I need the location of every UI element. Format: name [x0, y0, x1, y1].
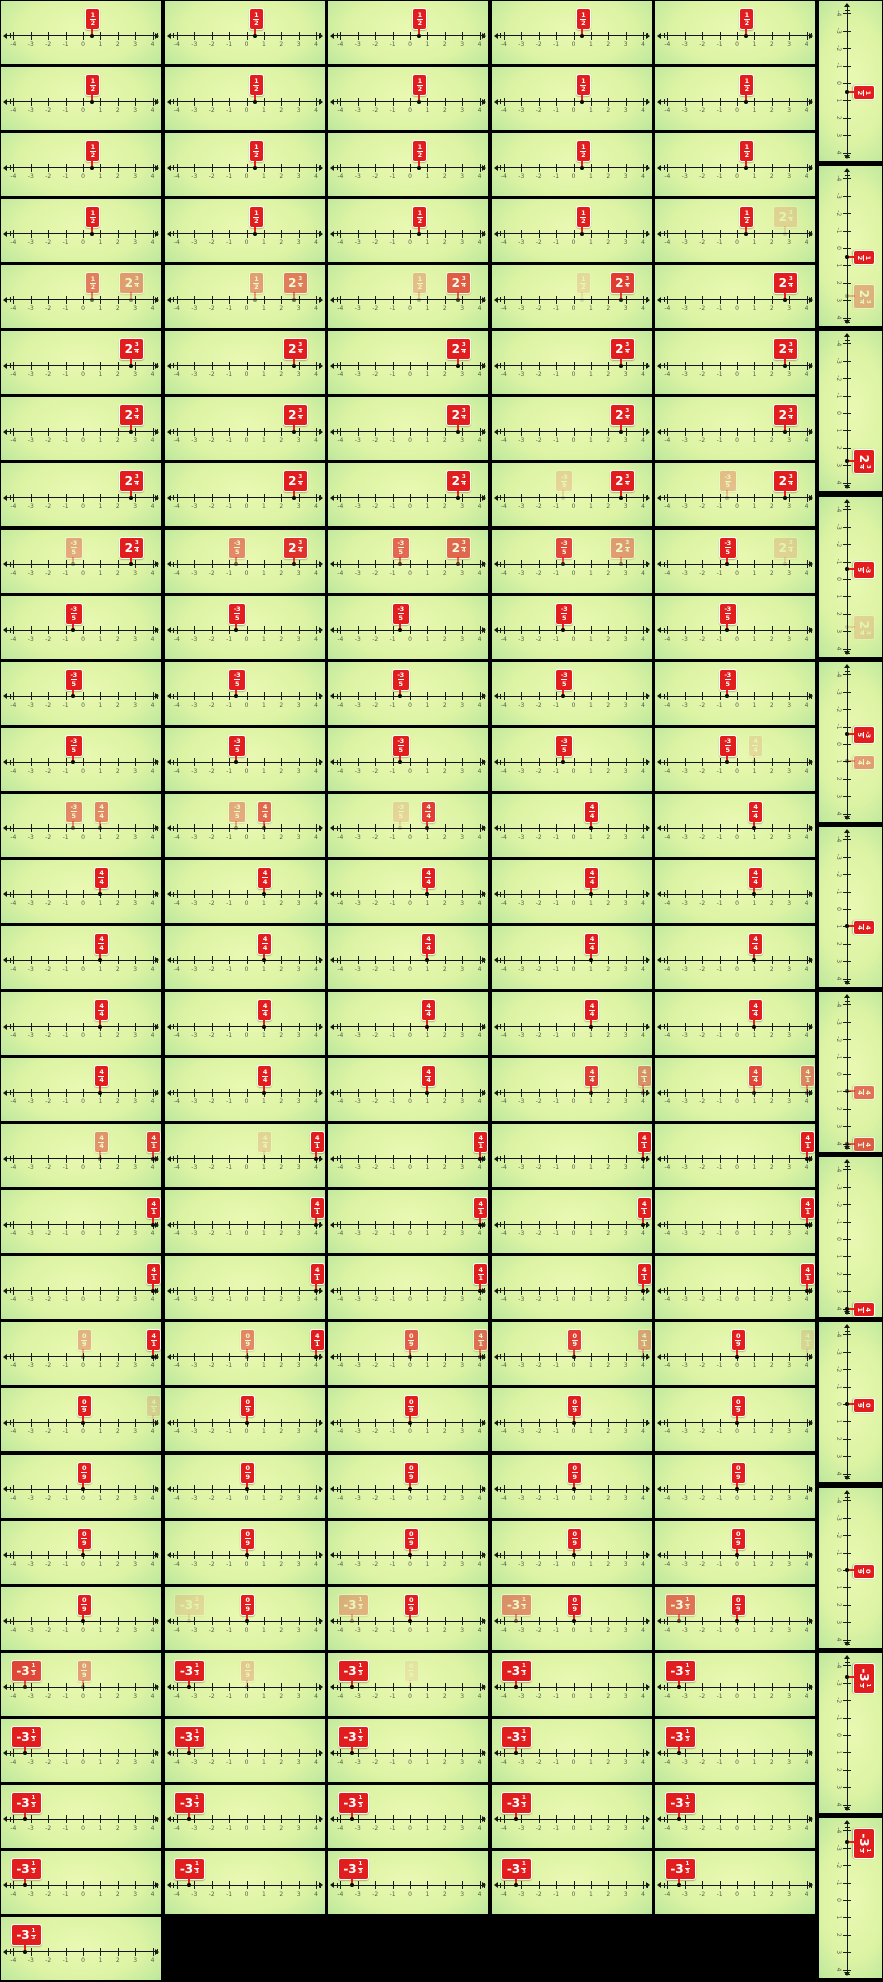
tick-mark [789, 230, 790, 238]
tick-mark [212, 1683, 213, 1691]
fraction-flag: 12 [739, 206, 754, 228]
tick-mark [229, 1419, 230, 1427]
minor-tick-mark [337, 562, 338, 567]
tick-label: -3 [515, 702, 527, 709]
tick-label: 0 [241, 1296, 253, 1303]
fraction-numerator: 4 [753, 936, 757, 943]
minor-tick-mark [337, 33, 338, 38]
tick-label: -4 [498, 636, 510, 643]
tick-mark [789, 164, 790, 172]
tick-mark [789, 1155, 790, 1163]
tick-mark [118, 494, 119, 502]
tick-label: -4 [334, 305, 346, 312]
fraction-stack: -35 [70, 804, 76, 819]
flag-pointer [849, 625, 855, 627]
tick-label: -4 [498, 1098, 510, 1105]
tick-mark [480, 1617, 481, 1625]
tick-label: -3 [352, 107, 364, 114]
tick-label: 3 [129, 1164, 141, 1171]
tick-mark [135, 1287, 136, 1295]
tick-label: -2 [206, 1098, 218, 1105]
minor-tick-mark [337, 826, 338, 831]
tick-mark [48, 494, 49, 502]
tick-mark [410, 164, 411, 172]
tick-mark [66, 362, 67, 370]
tick-mark [13, 626, 14, 634]
tick-mark [772, 1155, 773, 1163]
fraction-denominator: 5 [562, 549, 566, 556]
tick-label: -1 [550, 437, 562, 444]
tick-label: -3 [352, 503, 364, 510]
tick-label: -1 [387, 173, 399, 180]
tick-mark [340, 1221, 341, 1229]
fraction-stack: 44 [589, 804, 595, 819]
number-line-frame: -4-3-2-101234234 [165, 331, 325, 394]
tick-mark [316, 362, 317, 370]
arrow-left-icon [657, 231, 661, 237]
tick-mark [281, 890, 282, 898]
tick-mark [299, 1023, 300, 1031]
tick-mark [13, 1617, 14, 1625]
tick-mark [31, 626, 32, 634]
fraction-denominator: 4 [590, 945, 594, 952]
tick-mark [807, 362, 808, 370]
marker-dot [245, 1355, 249, 1359]
tick-label: 2 [275, 1362, 287, 1369]
fraction-denominator: 4 [263, 1011, 267, 1018]
tick-mark [118, 758, 119, 766]
minor-tick-mark [664, 1156, 665, 1161]
tick-label: -4 [7, 1957, 19, 1964]
tick-label: -1 [223, 702, 235, 709]
tick-label: -2 [369, 437, 381, 444]
fraction-denominator: 4 [298, 350, 301, 356]
tick-mark [66, 1089, 67, 1097]
fraction-numerator: 0 [736, 1465, 740, 1472]
tick-mark [521, 230, 522, 238]
tick-mark [737, 1023, 738, 1031]
arrow-left-icon [494, 825, 498, 831]
fraction-numerator: 4 [426, 804, 430, 811]
marker-dot [725, 694, 729, 698]
tick-mark [153, 428, 154, 436]
tick-mark [591, 1353, 592, 1361]
tick-mark [685, 758, 686, 766]
tick-mark [229, 164, 230, 172]
tick-mark [427, 1881, 428, 1889]
tick-mark [789, 362, 790, 370]
fraction-numerator: 0 [245, 1531, 249, 1538]
marker-dot [71, 826, 75, 830]
tick-label: -3 [679, 1296, 691, 1303]
number-line-frame: -4-3-2-101234-313 [1, 1851, 161, 1914]
tick-label: 1 [421, 570, 433, 577]
tick-mark [316, 494, 317, 502]
tick-label: -3 [515, 1032, 527, 1039]
tick-label: -2 [533, 1693, 545, 1700]
tick-mark [281, 1089, 282, 1097]
tick-mark [194, 1221, 195, 1229]
tick-mark [667, 824, 668, 832]
number-line [170, 431, 320, 432]
tick-label: 3 [620, 900, 632, 907]
tick-label: -3 [188, 503, 200, 510]
fraction-stack: 41 [641, 1135, 647, 1150]
tick-label: -3 [25, 1825, 37, 1832]
tick-mark [229, 362, 230, 370]
fraction-denominator: 2 [581, 284, 585, 291]
tick-label: 4 [801, 107, 813, 114]
tick-label: -3 [679, 570, 691, 577]
tick-label: 0 [77, 834, 89, 841]
tick-label: -2 [696, 1428, 708, 1435]
number-line [170, 1753, 320, 1754]
tick-label: -4 [498, 834, 510, 841]
tick-label: 4 [801, 1230, 813, 1237]
tick-label: -2 [533, 371, 545, 378]
tick-mark [591, 230, 592, 238]
fraction-flag: 41 [637, 1197, 652, 1219]
fraction-numerator: 1 [195, 1796, 198, 1802]
tick-label: 0 [731, 702, 743, 709]
tick-label: 0 [731, 1495, 743, 1502]
tick-mark [48, 164, 49, 172]
number-line-frame: -4-3-2-101234234 [492, 331, 652, 394]
minor-tick-mark [500, 562, 501, 567]
tick-label: -1 [387, 371, 399, 378]
tick-mark [358, 1089, 359, 1097]
tick-label: -1 [550, 503, 562, 510]
fraction-flag: 09 [567, 1462, 582, 1484]
number-line [660, 1687, 810, 1688]
tick-mark [177, 428, 178, 436]
tick-label: 0 [77, 900, 89, 907]
tick-label: -3 [188, 437, 200, 444]
arrow-left-icon [330, 825, 334, 831]
tick-label: 0 [404, 1428, 416, 1435]
minor-tick-mark [664, 958, 665, 963]
tick-label: 0 [77, 1759, 89, 1766]
tick-mark [521, 956, 522, 964]
tick-label: -4 [661, 636, 673, 643]
tick-label: -3 [352, 1032, 364, 1039]
tick-label: 4 [474, 1825, 486, 1832]
fraction-numerator: 3 [135, 277, 138, 283]
tick-mark [626, 32, 627, 40]
tick-label: -2 [206, 1164, 218, 1171]
number-line [847, 6, 848, 156]
tick-mark [358, 1023, 359, 1031]
tick-mark [608, 362, 609, 370]
tick-label: 1 [258, 1495, 270, 1502]
tick-mark [375, 758, 376, 766]
fraction-numerator: 1 [32, 1929, 35, 1935]
arrow-left-icon [3, 1552, 7, 1558]
tick-label: -4 [835, 173, 842, 185]
arrow-left-icon [330, 1354, 334, 1360]
tick-mark [539, 296, 540, 304]
tick-mark [212, 1749, 213, 1757]
tick-mark [702, 1485, 703, 1493]
fraction-flag: -35 [65, 603, 83, 625]
tick-mark [772, 1815, 773, 1823]
marker-dot [350, 1751, 354, 1755]
tick-mark [702, 1287, 703, 1295]
tick-label: -3 [515, 107, 527, 114]
fraction-denominator: 5 [399, 615, 403, 622]
tick-label: -4 [498, 1627, 510, 1634]
tick-mark [504, 230, 505, 238]
tick-label: 4 [637, 1098, 649, 1105]
tick-label: 0 [404, 1230, 416, 1237]
flag-pointer [849, 295, 855, 297]
minor-tick-mark [10, 826, 11, 831]
number-line [497, 1026, 647, 1027]
fraction-numerator: -3 [397, 804, 403, 811]
minor-tick-mark [173, 1685, 174, 1690]
tick-label: 1 [748, 636, 760, 643]
fraction-numerator: 1 [686, 1796, 689, 1802]
tick-mark [737, 1683, 738, 1691]
fraction-stack: -35 [234, 672, 240, 687]
tick-mark [375, 428, 376, 436]
tick-mark [626, 824, 627, 832]
minor-tick-mark [664, 1883, 665, 1888]
tick-mark [375, 296, 376, 304]
tick-label: -4 [334, 239, 346, 246]
tick-mark [264, 98, 265, 106]
fraction-denominator: 3 [686, 1672, 689, 1678]
minor-tick-mark [500, 231, 501, 236]
tick-mark [247, 1023, 248, 1031]
number-line-frame: -4-3-2-10123409 [1, 1455, 161, 1518]
minor-tick-mark [811, 99, 812, 104]
arrow-left-icon [167, 1684, 171, 1690]
marker-dot [292, 430, 296, 434]
tick-mark [375, 560, 376, 568]
tick-mark [807, 164, 808, 172]
marker-dot [98, 958, 102, 962]
tick-mark [299, 1749, 300, 1757]
tick-mark [264, 1881, 265, 1889]
tick-label: -3 [835, 355, 842, 367]
fraction-flag: -313 [665, 1858, 696, 1880]
marker-dot [234, 694, 238, 698]
tick-label: 1 [585, 239, 597, 246]
tick-mark [135, 1155, 136, 1163]
tick-label: 2 [439, 503, 451, 510]
tick-label: -3 [25, 1098, 37, 1105]
tick-label: -2 [533, 1164, 545, 1171]
tick-label: -2 [42, 1957, 54, 1964]
tick-label: -1 [223, 1495, 235, 1502]
tick-label: -3 [679, 1561, 691, 1568]
tick-label: -1 [550, 1759, 562, 1766]
fraction-flag: 12 [576, 272, 591, 294]
fraction-numerator: 4 [99, 870, 103, 877]
number-line-frame: -4-3-2-101234-35 [1, 662, 161, 725]
arrow-left-icon [167, 231, 171, 237]
tick-label: -1 [387, 1825, 399, 1832]
tick-mark [13, 1815, 14, 1823]
minor-tick-mark [173, 165, 174, 170]
tick-label: 1 [748, 834, 760, 841]
number-line-frame: -4-3-2-101234-35 [328, 728, 488, 791]
tick-label: 2 [766, 503, 778, 510]
tick-mark [754, 230, 755, 238]
tick-label: -2 [369, 570, 381, 577]
fraction-stack: 44 [425, 936, 431, 951]
number-line-frame: -4-3-2-10123444 [655, 926, 815, 989]
minor-tick-mark [157, 958, 158, 963]
tick-label: 4 [637, 1825, 649, 1832]
number-line [660, 894, 810, 895]
tick-label: -1 [223, 305, 235, 312]
fraction-numerator: 1 [581, 144, 585, 151]
number-line [333, 828, 483, 829]
fraction-whole-number: 2 [125, 409, 133, 421]
fraction-stack: 41 [478, 1333, 484, 1348]
minor-tick-mark [157, 1817, 158, 1822]
minor-tick-mark [337, 1817, 338, 1822]
fraction-numerator: 0 [736, 1399, 740, 1406]
fraction-flag: 12 [249, 8, 264, 30]
tick-mark [480, 1551, 481, 1559]
tick-label: 2 [602, 570, 614, 577]
tick-label: 1 [94, 1098, 106, 1105]
tick-label: -3 [679, 702, 691, 709]
fraction-numerator: 1 [359, 1664, 362, 1670]
fraction-numerator: -3 [724, 474, 730, 481]
tick-mark [789, 890, 790, 898]
arrow-left-icon [330, 693, 334, 699]
fraction-flag: -313 [665, 1660, 696, 1682]
tick-label: -4 [7, 41, 19, 48]
fraction-stack: 12 [417, 12, 423, 27]
fraction-denominator: 1 [478, 1341, 482, 1348]
minor-tick-mark [647, 99, 648, 104]
minor-tick-mark [647, 892, 648, 897]
tick-label: -1 [60, 1164, 72, 1171]
tick-mark [591, 98, 592, 106]
fraction-numerator: 3 [865, 300, 871, 303]
tick-mark [772, 956, 773, 964]
tick-label: -4 [498, 1693, 510, 1700]
tick-label: -2 [533, 1759, 545, 1766]
tick-mark [393, 1617, 394, 1625]
tick-mark [462, 890, 463, 898]
number-line [497, 1687, 647, 1688]
minor-tick-mark [500, 892, 501, 897]
number-line-frame: -4-3-2-10123441 [1, 1190, 161, 1253]
tick-label: 3 [783, 570, 795, 577]
tick-label: 3 [129, 239, 141, 246]
tick-mark [393, 164, 394, 172]
number-line-frame: -4-3-2-10123444 [492, 926, 652, 989]
tick-mark [685, 560, 686, 568]
tick-mark [608, 824, 609, 832]
fraction-flag: 44 [421, 1065, 436, 1087]
number-line-frame: -4-3-2-10123441 [328, 1190, 488, 1253]
tick-label: 1 [585, 1759, 597, 1766]
fraction-whole-number: 2 [779, 343, 787, 355]
tick-mark [685, 692, 686, 700]
number-line-frame: -4-3-2-10123444 [492, 794, 652, 857]
number-line-frame: -4-3-2-10123412234 [492, 265, 652, 328]
tick-mark [737, 626, 738, 634]
tick-label: 2 [766, 900, 778, 907]
tick-mark [13, 1287, 14, 1295]
fraction-denominator: 1 [478, 1143, 482, 1150]
tick-mark [247, 956, 248, 964]
tick-label: 4 [801, 768, 813, 775]
tick-label: 1 [748, 503, 760, 510]
tick-label: 1 [258, 834, 270, 841]
tick-label: -2 [369, 1362, 381, 1369]
fraction-flag: 09 [240, 1528, 255, 1550]
tick-mark [445, 296, 446, 304]
fraction-whole-number: -3 [16, 1929, 29, 1941]
fraction-stack: -35 [397, 672, 403, 687]
sprite-sheet: -4-3-2-10123412-4-3-2-10123412-4-3-2-101… [0, 0, 883, 1982]
fraction-flag: 12 [576, 140, 591, 162]
tick-label: -3 [515, 305, 527, 312]
minor-tick-mark [500, 165, 501, 170]
tick-mark [462, 626, 463, 634]
tick-mark [574, 494, 575, 502]
tick-mark [521, 1023, 522, 1031]
tick-mark [358, 1815, 359, 1823]
tick-label: 4 [801, 900, 813, 907]
fraction-flag: 12 [412, 206, 427, 228]
tick-mark [462, 1155, 463, 1163]
marker-dot [314, 1223, 318, 1227]
tick-mark [281, 1551, 282, 1559]
tick-label: -4 [334, 1296, 346, 1303]
tick-label: -4 [7, 966, 19, 973]
fraction-flag: 12 [739, 140, 754, 162]
tick-mark [299, 1155, 300, 1163]
tick-label: -4 [661, 1825, 673, 1832]
number-line-frame: -4-3-2-10123412 [328, 199, 488, 262]
tick-mark [754, 98, 755, 106]
minor-tick-mark [10, 1222, 11, 1227]
fraction-numerator: 1 [32, 1862, 35, 1868]
number-line-frame: -4-3-2-10123409-313 [655, 1587, 815, 1650]
tick-mark [462, 824, 463, 832]
arrow-left-icon [494, 627, 498, 633]
tick-mark [229, 1287, 230, 1295]
tick-mark [229, 692, 230, 700]
number-line-frame: -4-3-2-1012344441 [655, 1058, 815, 1121]
tick-mark [608, 890, 609, 898]
tick-mark [375, 362, 376, 370]
tick-mark [135, 692, 136, 700]
tick-mark [48, 1551, 49, 1559]
tick-label: -2 [369, 107, 381, 114]
tick-mark [521, 560, 522, 568]
fraction-stack: 34 [788, 343, 793, 356]
marker-dot [478, 1157, 482, 1161]
tick-label: 0 [731, 1362, 743, 1369]
number-line [6, 696, 156, 697]
tick-label: 4 [474, 702, 486, 709]
fraction-numerator: 3 [789, 541, 792, 547]
tick-label: -4 [661, 702, 673, 709]
tick-label: -2 [42, 239, 54, 246]
tick-label: -1 [60, 1098, 72, 1105]
tick-label: 2 [112, 1891, 124, 1898]
